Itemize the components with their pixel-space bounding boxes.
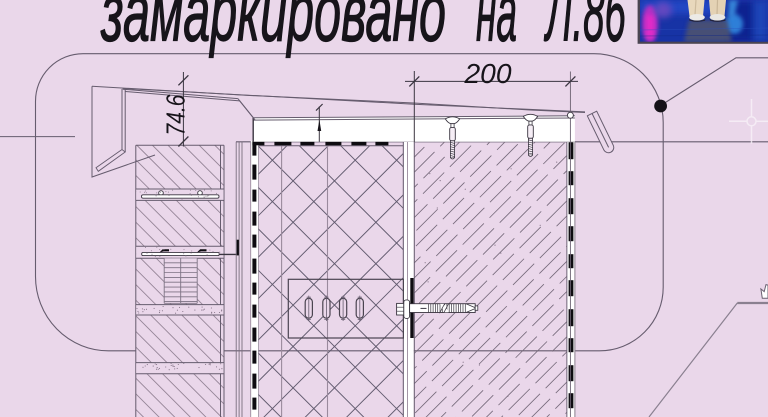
svg-text:200: 200 — [463, 58, 512, 89]
svg-text:замаркировано: замаркировано — [100, 0, 446, 59]
svg-text:Л.86: Л.86 — [544, 0, 627, 59]
svg-text:74.6: 74.6 — [161, 94, 191, 135]
svg-text:на: на — [476, 0, 517, 59]
